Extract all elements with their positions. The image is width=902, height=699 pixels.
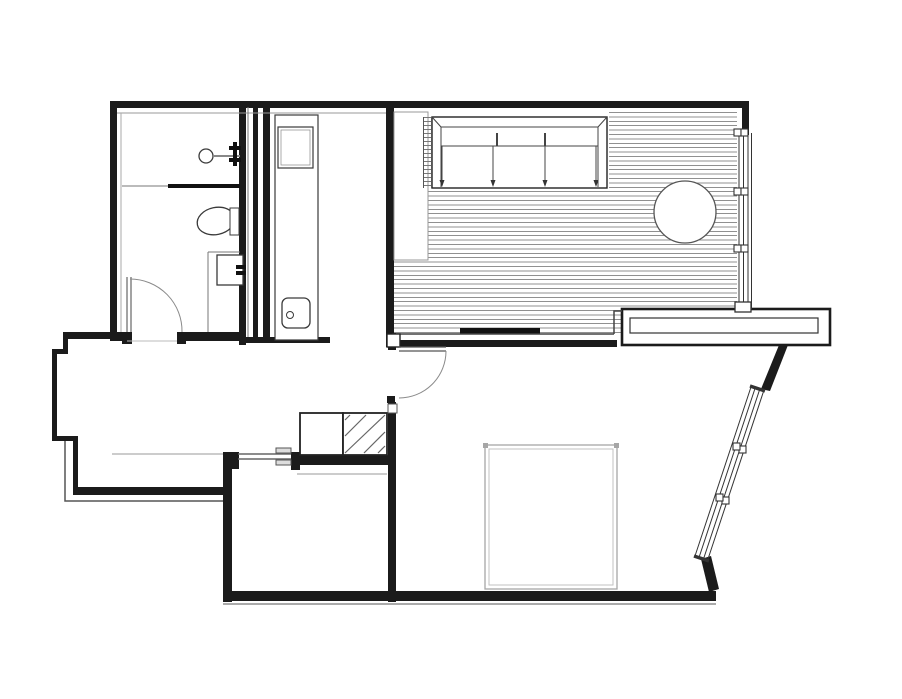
kitchen-unit-plain (300, 413, 343, 455)
mullion-square (741, 245, 748, 252)
door-jamb (291, 452, 300, 470)
wall-segment (297, 455, 388, 465)
utility-sink-icon (282, 298, 310, 328)
door-hinge-tab (276, 460, 291, 465)
glazing-line (707, 390, 764, 562)
window-end-cap (735, 302, 751, 312)
shower-head-icon (199, 149, 213, 163)
wall-segment (396, 340, 617, 347)
planter-outer (622, 309, 830, 345)
ladder-strip (423, 117, 432, 188)
mullion-square (741, 129, 748, 136)
wall-segment (223, 452, 232, 602)
bed-corner (483, 443, 488, 448)
valve-bar (233, 142, 237, 154)
angled-wall-segment (761, 345, 788, 391)
door-hinge-tab (276, 448, 291, 453)
wall-segment (186, 332, 246, 341)
toilet-cistern (230, 208, 239, 235)
mullion-square (716, 494, 723, 501)
floor-plan-canvas (0, 0, 902, 699)
mullion-square (734, 245, 741, 252)
southeast-angled-window (694, 386, 765, 563)
bedroom-door (388, 347, 446, 413)
wall-segment (110, 101, 117, 339)
parapet-planter-band (622, 309, 830, 345)
wardrobe (432, 117, 607, 188)
glazing-line (695, 386, 752, 558)
bed-corner (614, 443, 619, 448)
glazing-line (703, 389, 760, 561)
bathroom-door (127, 277, 182, 332)
valve-bar (233, 154, 237, 166)
bed-inner (489, 449, 613, 585)
wall-segment (110, 332, 123, 341)
wall-segment (386, 107, 394, 347)
door-jamb (122, 332, 132, 344)
washbasin-icon (217, 255, 243, 285)
floor-plan-drawing (0, 0, 902, 699)
wall-segment (223, 591, 716, 601)
door-jamb (387, 396, 395, 403)
door-jamb-box (388, 404, 397, 413)
wall-segment (263, 107, 270, 343)
wall-segment (253, 107, 258, 343)
bed-outline (483, 443, 619, 589)
wall-segment (63, 332, 117, 339)
storage-room-door (238, 448, 291, 465)
wall-segment (388, 402, 396, 602)
north-window-strip (734, 129, 752, 312)
mullion-square (733, 443, 740, 450)
window-end-cap (694, 556, 709, 561)
door-jamb (232, 452, 239, 469)
wall-junction-post (387, 334, 400, 347)
sink-drain-icon (287, 312, 294, 319)
threshold-bar (460, 328, 540, 334)
wall-segment (115, 101, 748, 108)
bed-outer (485, 445, 617, 589)
shower-screen (168, 184, 240, 188)
wall-segment (73, 487, 223, 495)
round-table (654, 181, 716, 243)
mullion-square (734, 188, 741, 195)
mullion-square (734, 129, 741, 136)
wall-segment (73, 436, 78, 493)
faucet-bar (236, 271, 246, 275)
wall-segment (52, 349, 57, 441)
wall-segment (239, 101, 246, 345)
door-swing-arc (130, 279, 182, 332)
faucet-bar (236, 265, 246, 269)
door-swing-arc (399, 351, 446, 398)
wardrobe-outline (432, 117, 607, 188)
appliance-box (278, 127, 313, 168)
glazing-line (699, 387, 756, 559)
door-jamb (177, 332, 186, 344)
mullion-square (741, 188, 748, 195)
angled-wall-segment (701, 556, 719, 592)
